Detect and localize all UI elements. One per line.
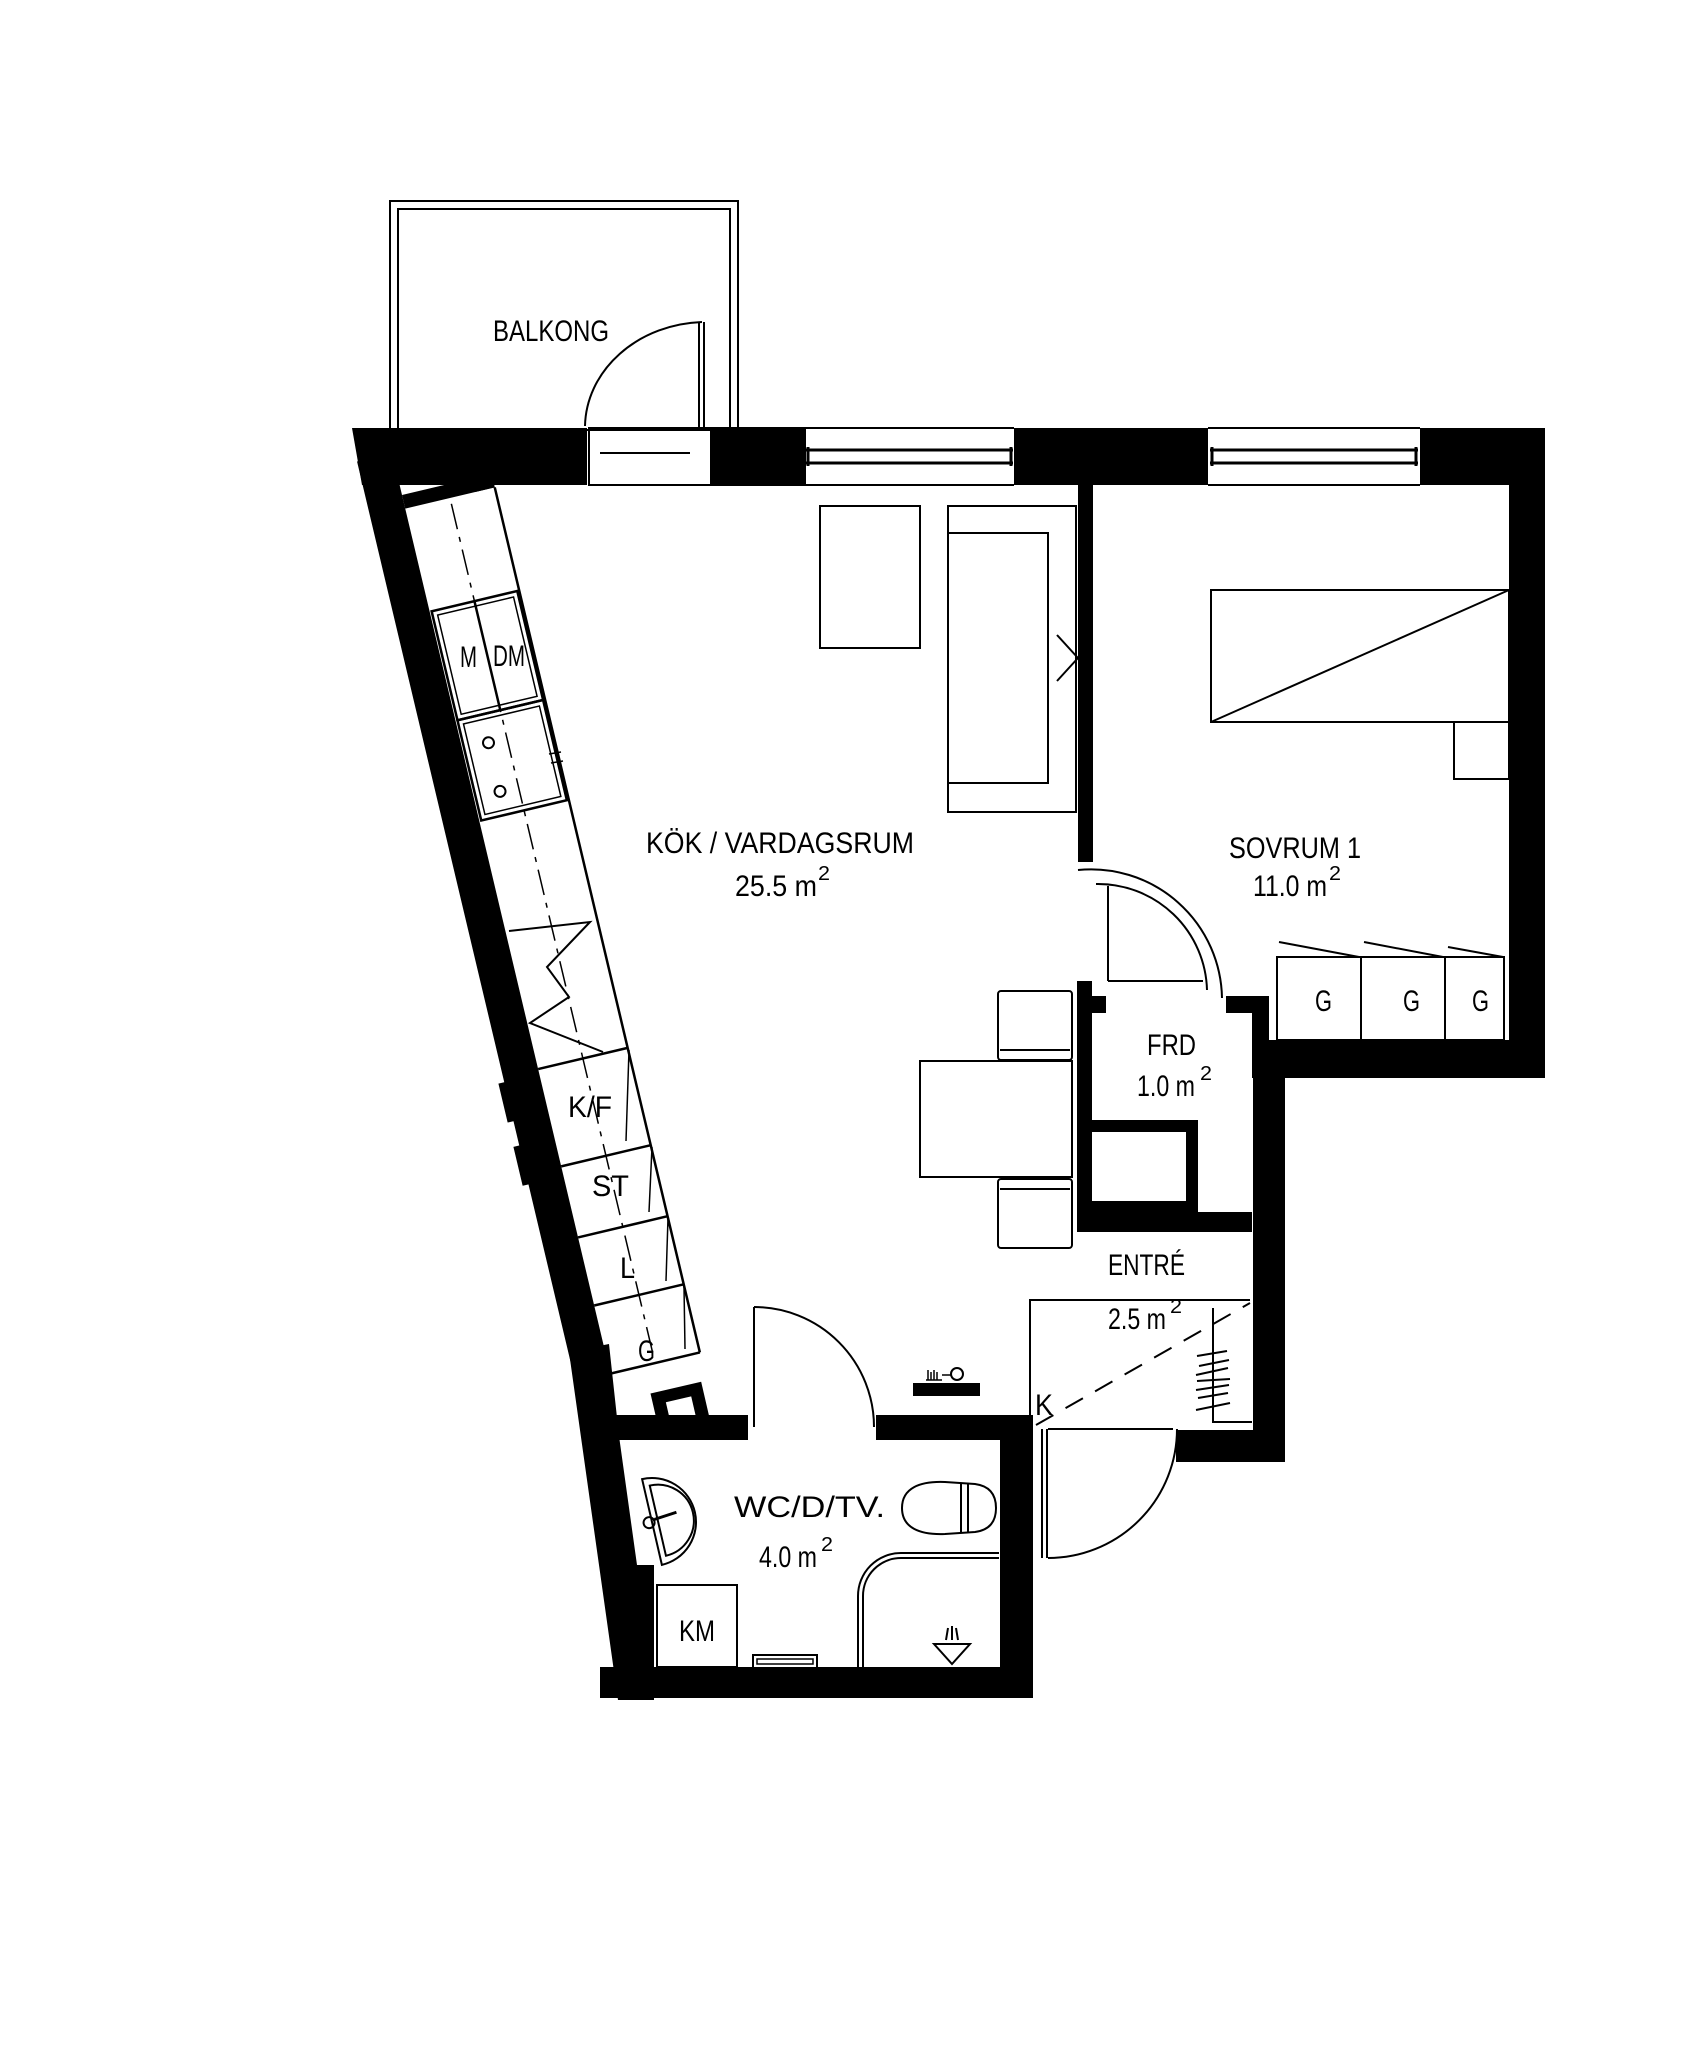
svg-text:1.0 m: 1.0 m [1137, 1070, 1195, 1103]
svg-text:4.0 m: 4.0 m [759, 1541, 817, 1574]
svg-text:G: G [638, 1335, 655, 1368]
svg-text:KÖK / VARDAGSRUM: KÖK / VARDAGSRUM [646, 827, 914, 860]
svg-text:FRD: FRD [1147, 1029, 1196, 1062]
svg-text:11.0 m: 11.0 m [1253, 870, 1327, 903]
svg-text:G: G [1403, 985, 1420, 1018]
svg-text:SOVRUM 1: SOVRUM 1 [1229, 832, 1361, 865]
svg-text:ST: ST [592, 1170, 629, 1203]
svg-text:2: 2 [1200, 1063, 1212, 1085]
svg-text:2: 2 [821, 1534, 833, 1556]
svg-text:DM: DM [493, 640, 525, 673]
svg-text:2: 2 [1170, 1296, 1182, 1318]
svg-text:25.5 m: 25.5 m [735, 870, 817, 903]
svg-text:2: 2 [818, 863, 830, 885]
svg-text:K/F: K/F [568, 1091, 612, 1124]
svg-text:KM: KM [679, 1615, 715, 1648]
svg-text:K: K [1035, 1389, 1053, 1422]
svg-text:ENTRÉ: ENTRÉ [1108, 1249, 1185, 1282]
svg-text:2.5 m: 2.5 m [1108, 1303, 1166, 1336]
svg-text:BALKONG: BALKONG [493, 315, 609, 348]
svg-text:G: G [1472, 985, 1489, 1018]
svg-text:2: 2 [1329, 863, 1341, 885]
svg-text:M: M [460, 641, 477, 674]
svg-text:G: G [1315, 985, 1332, 1018]
svg-text:L: L [620, 1252, 635, 1285]
svg-text:WC/D/TV.: WC/D/TV. [734, 1491, 885, 1524]
